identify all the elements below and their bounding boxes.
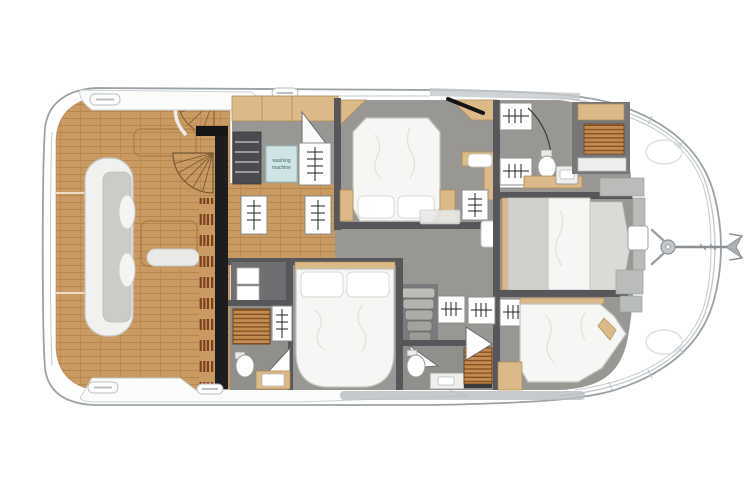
gb-left-wall-top <box>228 300 290 306</box>
gb-centre-wall-top <box>400 340 466 346</box>
guest-pillow-right <box>347 272 389 297</box>
aft-sofa <box>85 158 135 336</box>
washing-machine-label-line2: machine <box>272 165 291 171</box>
bow-lower-corner-seat <box>498 362 522 390</box>
interior: washing machine <box>228 96 635 390</box>
bow-upper-duvet <box>508 198 548 290</box>
master-bed <box>353 118 440 221</box>
sofa-bolster-2 <box>119 253 135 287</box>
wardrobe-utility <box>299 143 331 185</box>
wardrobe-bath-left <box>272 306 292 341</box>
bow-hatch-block-4 <box>620 296 642 312</box>
sofa-seat <box>103 172 131 322</box>
guest-bathroom-left <box>228 300 292 390</box>
yacht-floorplan-diagram: washing machine <box>0 0 744 496</box>
guest-bed-headboard <box>295 262 395 269</box>
engine-vent-grilles <box>199 198 214 390</box>
wardrobe-master-low <box>462 190 488 220</box>
guest-cabinet-box1 <box>237 268 259 284</box>
master-cabin-bottom-wall <box>334 222 500 229</box>
cleat-bottom-left <box>88 382 118 393</box>
guest-cabinet-box2 <box>237 286 259 302</box>
shower-grate-left <box>233 309 270 344</box>
bow-cabin-upper <box>500 198 630 297</box>
master-stool <box>468 154 492 167</box>
wardrobe-row-2 <box>468 297 495 324</box>
bow-lower-headboard <box>520 298 604 304</box>
aft-deck <box>56 95 230 394</box>
sofa-bolster-1 <box>119 195 135 229</box>
wardrobe-galley-left <box>241 196 267 234</box>
bow-upper-headboard <box>502 198 508 290</box>
washing-machine-label-line1: washing <box>272 158 291 164</box>
washing-machine: washing machine <box>266 146 297 182</box>
cleat-bottom-mid <box>197 384 223 394</box>
aft-bulkhead-wall <box>215 128 228 394</box>
gunwale-band-bottom <box>340 391 585 400</box>
cleat-top-left <box>90 94 120 105</box>
fwd-bathroom-wall-left <box>493 100 500 390</box>
bow-hatch-block-3 <box>616 270 643 294</box>
utility-cabinet-top <box>232 96 338 121</box>
shower-drain-strip <box>464 384 492 388</box>
floorplan-svg: washing machine <box>0 0 744 496</box>
corridor-side-table <box>420 210 460 224</box>
windlass-housing <box>628 226 648 250</box>
wardrobe-galley-right <box>305 196 331 234</box>
vanity-left-bath <box>256 371 290 389</box>
stairs-down <box>398 284 438 346</box>
guest-cabin-right-wall <box>396 258 403 390</box>
aft-bulkhead-corner <box>196 126 228 136</box>
companionway-stairs <box>233 132 261 184</box>
master-bedside-left <box>340 190 353 221</box>
wardrobe-bath-1 <box>500 103 532 130</box>
bow-hatch-block-1 <box>600 178 644 196</box>
master-pillow-left <box>358 196 394 218</box>
shower-fwd-bathroom <box>572 102 630 174</box>
bow-upper-mattress <box>548 198 590 290</box>
vanity-centre-bath <box>430 373 464 389</box>
wardrobe-row-1 <box>438 296 465 323</box>
bow-cabin-divider-wall <box>500 290 628 297</box>
cockpit-table <box>147 249 199 266</box>
guest-pillow-left <box>301 272 343 297</box>
